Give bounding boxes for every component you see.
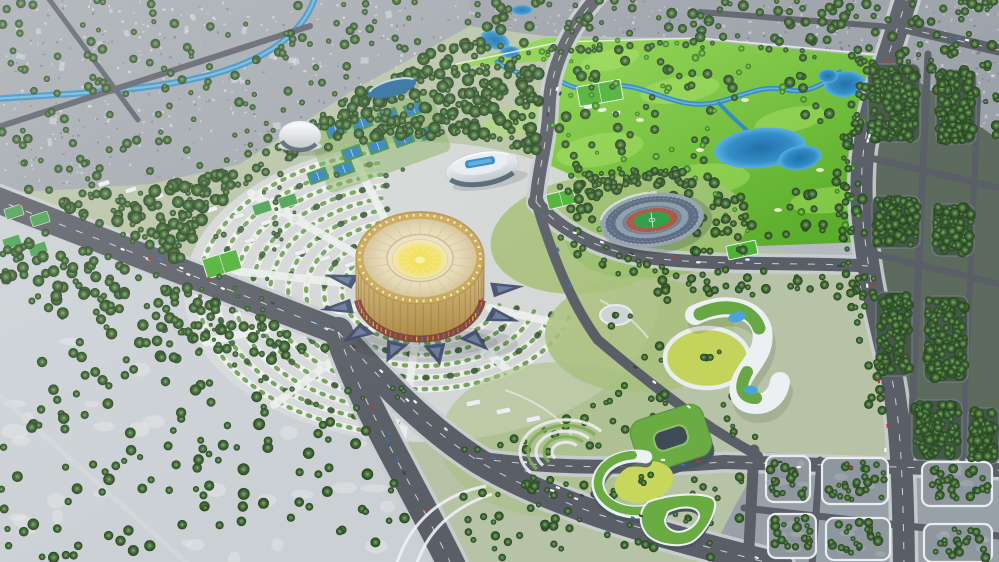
scene-svg (0, 0, 999, 562)
aerial-render-stage (0, 0, 999, 562)
atmospheric-haze (0, 0, 999, 562)
